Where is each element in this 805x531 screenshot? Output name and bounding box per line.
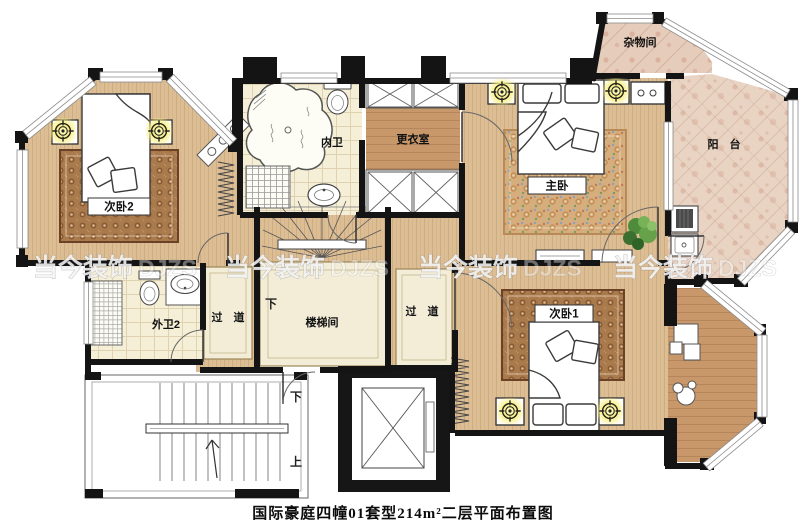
stair-up-label: 上 <box>290 454 302 469</box>
ceiling-lamp-icon <box>597 398 623 424</box>
watermark-brand: 当今装饰 <box>33 253 133 282</box>
ceiling-lamp-icon <box>146 118 172 144</box>
plan-caption: 国际豪庭四幢01套型214m²二层平面布置图 <box>252 504 554 522</box>
watermark-brand: 当今装饰 <box>418 253 518 282</box>
room-label-bedroom2: 次卧2 <box>104 200 133 214</box>
watermark-suffix: DJZS <box>330 255 389 281</box>
floor-plan-svg: 次卧2 内卫 更衣室 主卧 杂物间 阳 台 外卫2 过 道 过 道 楼梯间 次卧… <box>0 0 805 531</box>
ceiling-lamp-icon <box>489 79 515 105</box>
watermark-suffix: DJZS <box>138 255 197 281</box>
room-label-storage: 杂物间 <box>624 35 657 49</box>
ceiling-lamp-icon <box>50 118 76 144</box>
room-label-outer-bath: 外卫2 <box>151 317 180 331</box>
watermark-brand: 当今装饰 <box>613 253 713 282</box>
washing-machine <box>671 206 698 256</box>
room-label-balcony: 阳 台 <box>708 137 741 151</box>
watermark-brand: 当今装饰 <box>225 253 325 282</box>
room-label-dressing: 更衣室 <box>397 132 430 146</box>
floor-plan: 次卧2 内卫 更衣室 主卧 杂物间 阳 台 外卫2 过 道 过 道 楼梯间 次卧… <box>0 0 805 531</box>
stair-down-label: 下 <box>290 390 302 404</box>
stairs-lower <box>85 375 308 498</box>
ceiling-lamp-icon <box>603 78 629 104</box>
watermark-suffix: DJZS <box>523 255 582 281</box>
shower-mat <box>246 166 290 208</box>
ceiling-lamp-icon <box>497 398 523 424</box>
room-label-inner-bath: 内卫 <box>321 135 343 149</box>
room-label-corridor-1: 过 道 <box>212 310 245 324</box>
watermark-suffix: DJZS <box>718 255 777 281</box>
room-label-stairwell: 楼梯间 <box>306 315 339 329</box>
room-label-master: 主卧 <box>546 179 569 193</box>
room-label-corridor-2: 过 道 <box>406 304 439 318</box>
room-label-bedroom1: 次卧1 <box>549 307 579 321</box>
stair-down-label: 下 <box>265 297 277 311</box>
sink <box>308 184 340 206</box>
shower-mat <box>90 281 122 345</box>
elevator-shaft-icon <box>338 366 450 492</box>
